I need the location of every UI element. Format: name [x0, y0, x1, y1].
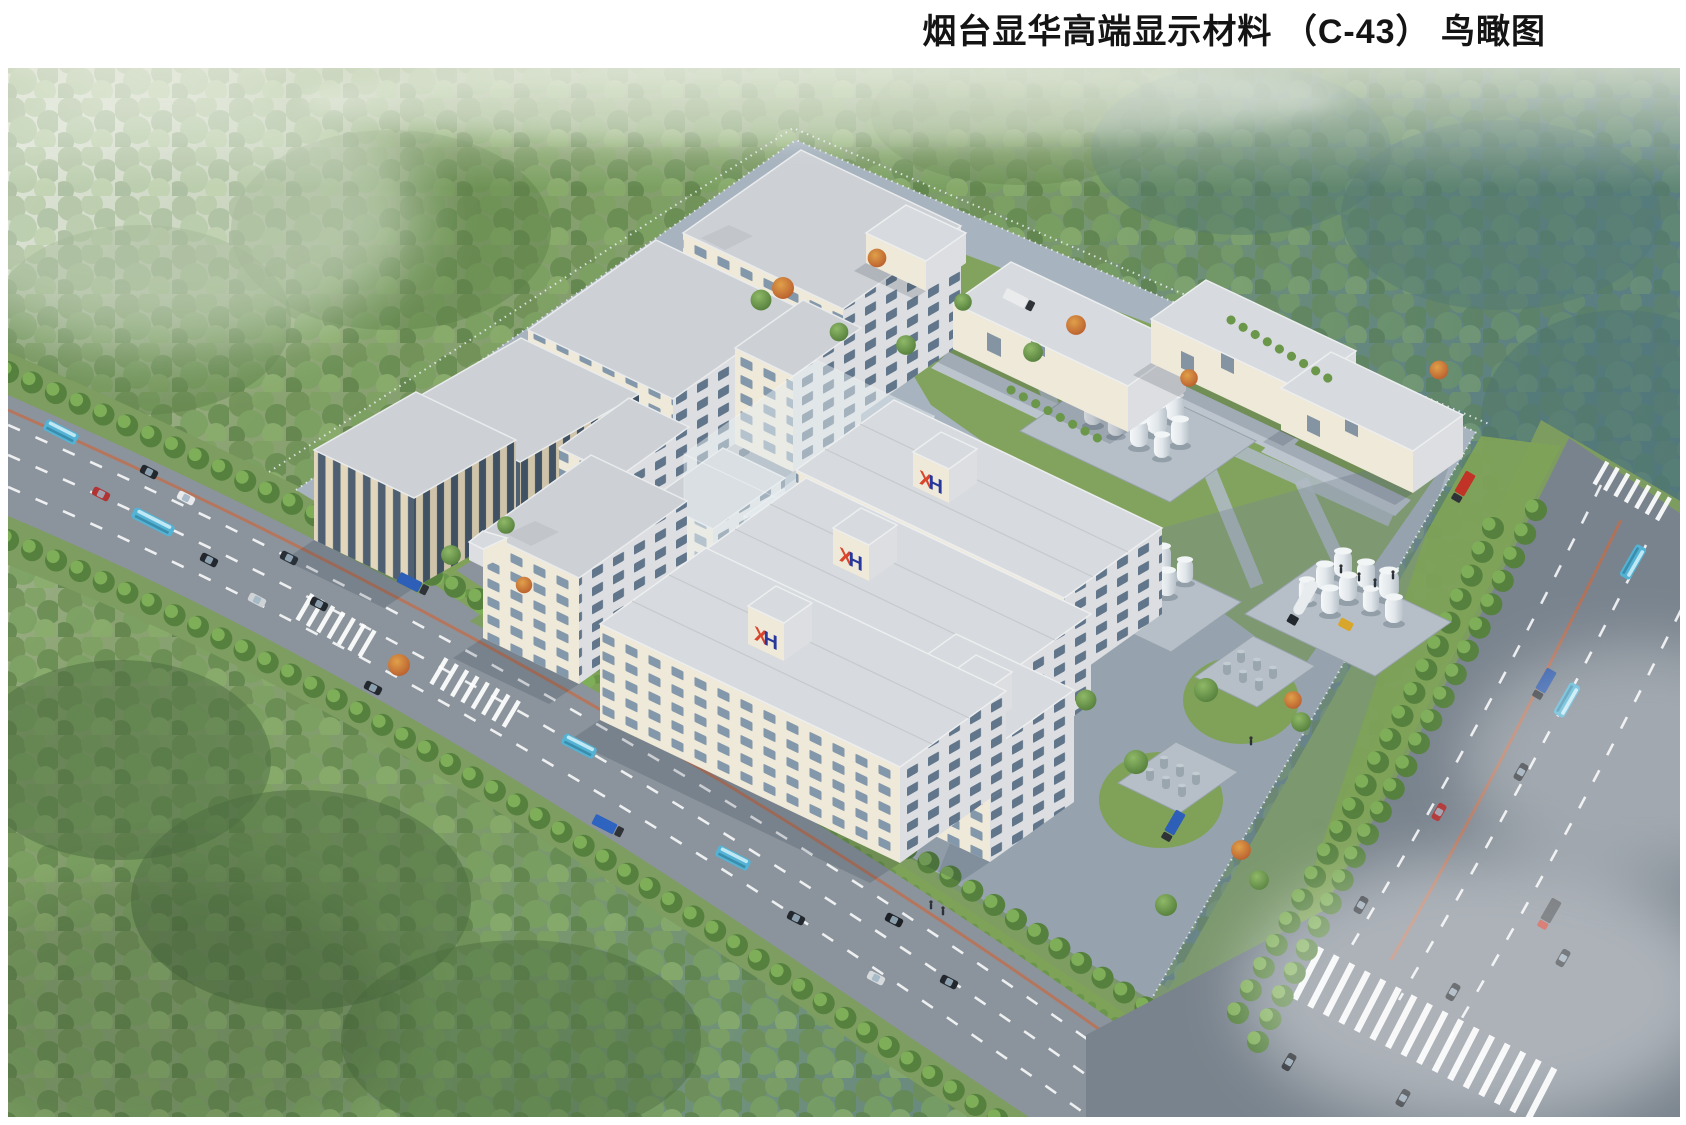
title-bar: 烟台显华高端显示材料 （C-43） 鸟瞰图	[0, 0, 1686, 68]
architectural-rendering-page: 烟台显华高端显示材料 （C-43） 鸟瞰图	[0, 0, 1686, 1125]
aerial-rendering-svg: XH XH	[8, 68, 1680, 1117]
page-title: 烟台显华高端显示材料 （C-43） 鸟瞰图	[922, 0, 1546, 64]
aerial-rendering: XH XH	[8, 68, 1680, 1117]
